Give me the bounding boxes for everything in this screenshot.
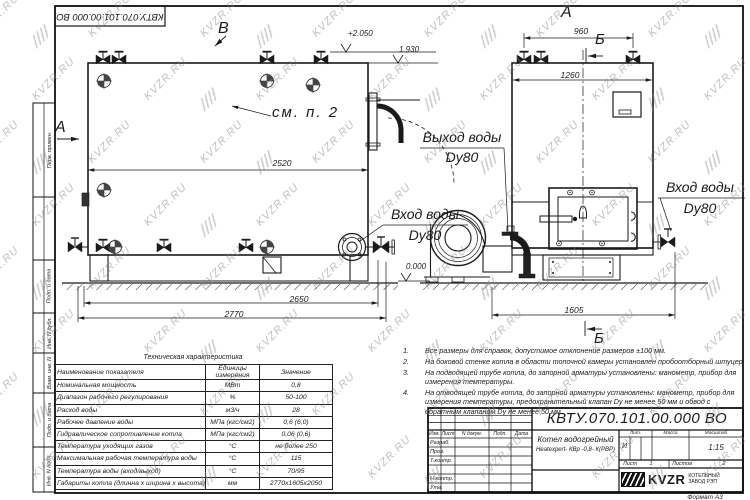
list-item: 2.На боковой стенке котла в области топо… bbox=[396, 357, 744, 366]
rev-header-izm: Изм. bbox=[428, 431, 441, 437]
sheet-value: 1 bbox=[644, 461, 658, 467]
table-row: Габариты котла (длинна х ширина х высота… bbox=[55, 477, 333, 489]
sheets-value: 2 bbox=[716, 461, 732, 467]
dim-1605: 1605 bbox=[552, 305, 596, 315]
table-row: Диапазон рабочего регулирования%50-100 bbox=[55, 392, 333, 404]
stamp-podp-data-2: Подп. и дата bbox=[45, 396, 55, 444]
see-note-callout: см. п. 2 bbox=[272, 104, 339, 121]
sheets-label: Листов bbox=[672, 461, 692, 467]
table-row: Температура уходящих газов°Сне более 250 bbox=[55, 441, 333, 453]
dim-2770: 2770 bbox=[212, 309, 256, 319]
stamp-inv-dubl: Инв. N дубл. bbox=[45, 316, 55, 350]
inlet-left-label: Вход воды bbox=[379, 206, 471, 222]
kvzr-logo-icon bbox=[621, 472, 645, 487]
rev-header-doc: N докум. bbox=[455, 431, 489, 437]
stamp-inv-podl: Инв. N подл. bbox=[45, 450, 55, 489]
dim-1260: 1260 bbox=[548, 70, 592, 80]
stamp-vzam-inv: Взам. инв. N bbox=[45, 356, 55, 390]
product-name-line2: Heatexpert- КВр -0,8- К(РВР) bbox=[532, 447, 619, 453]
row-label-nkontr: Н.контр. bbox=[430, 476, 453, 482]
table-row: Максимальная рабочая температура воды°С1… bbox=[55, 453, 333, 465]
dim-960: 960 bbox=[562, 26, 600, 36]
row-label-tkontr: Т.контр. bbox=[430, 458, 452, 464]
table-row: Номинальная мощностьМВт0,8 bbox=[55, 380, 333, 392]
rev-header-podp: Подп. bbox=[489, 431, 511, 437]
lit-value: И bbox=[619, 443, 630, 450]
outlet-dn-label: Dy80 bbox=[416, 149, 508, 165]
top-doc-number: КВТУ.070.101.00.000 ВО bbox=[55, 7, 165, 26]
table-row: Температура воды (вход/выход)°С70/95 bbox=[55, 465, 333, 477]
section-marker-b-bottom: Б bbox=[594, 330, 604, 347]
scale-header: Масштаб bbox=[689, 431, 743, 436]
kvzr-logo-text: KVZR bbox=[648, 472, 685, 487]
section-marker-a-top: А bbox=[561, 4, 572, 22]
view-marker-v-top: В bbox=[218, 20, 229, 38]
sheet-label: Лист bbox=[623, 461, 637, 467]
rev-header-data: Дата bbox=[511, 431, 532, 437]
elevation-top: +2.050 bbox=[348, 29, 373, 38]
dim-2650: 2650 bbox=[277, 294, 321, 304]
inlet-right-dn-label: Dy80 bbox=[654, 200, 746, 216]
tech-table: Наименование показателя Единицы измерени… bbox=[54, 364, 333, 490]
scale-value: 1:15 bbox=[689, 443, 743, 452]
inlet-left-dn-label: Dy80 bbox=[379, 227, 471, 243]
inlet-right-label: Вход воды bbox=[654, 179, 746, 195]
mass-header: Масса bbox=[652, 431, 689, 436]
table-row: Расход водым3/ч28 bbox=[55, 404, 333, 416]
tech-table-header-row: Наименование показателя Единицы измерени… bbox=[55, 365, 333, 380]
tech-header-value: Значение bbox=[260, 365, 333, 380]
section-marker-a-left: А bbox=[55, 119, 66, 137]
product-name-line1: Котел водогрейный bbox=[532, 435, 619, 444]
list-item: 1.Все размеры для справок, допустимое от… bbox=[396, 346, 744, 355]
elevation-mid: 1.930 bbox=[399, 45, 419, 54]
tech-header-name: Наименование показателя bbox=[55, 365, 206, 380]
table-row: Гидравлическое сопротивление котлаМПа (к… bbox=[55, 429, 333, 441]
dim-2520: 2520 bbox=[260, 158, 304, 168]
row-label-prov: Пров. bbox=[430, 449, 445, 455]
company-name: КОТЕЛЬНЫЙ ЗАВОД РЭП bbox=[688, 474, 719, 486]
elevation-zero: 0.000 bbox=[406, 262, 426, 271]
title-doc-number: КВТУ.070.101.00.000 ВО bbox=[533, 410, 741, 427]
company-logo-block: KVZR КОТЕЛЬНЫЙ ЗАВОД РЭП bbox=[621, 469, 741, 490]
drawing-sheet: КВТУ.070.101.00.000 ВО Перв. примен. Под… bbox=[0, 0, 750, 500]
notes-list: 1.Все размеры для справок, допустимое от… bbox=[396, 346, 744, 418]
row-label-utv: Утв. bbox=[430, 485, 443, 491]
tech-header-units: Единицы измерения bbox=[206, 365, 260, 380]
outlet-label: Выход воды bbox=[416, 129, 508, 145]
stamp-sprav bbox=[45, 200, 55, 257]
list-item: 3.На подводящей трубе котла, до запорной… bbox=[396, 368, 744, 387]
stamp-podp-data-1: Подп. и дата bbox=[45, 263, 55, 310]
tech-table-title: Техническая характеристика bbox=[54, 354, 332, 361]
stamp-perv-primen: Перв. примен. bbox=[45, 106, 55, 194]
table-row: Рабочее давление водыМПа (кгс/см2)0,6 (6… bbox=[55, 416, 333, 428]
row-label-razrab: Разраб. bbox=[430, 440, 450, 446]
format-label: Формат А3 bbox=[660, 494, 750, 500]
lit-header: Лит. bbox=[619, 431, 652, 436]
rev-header-list: Лист bbox=[441, 431, 455, 437]
